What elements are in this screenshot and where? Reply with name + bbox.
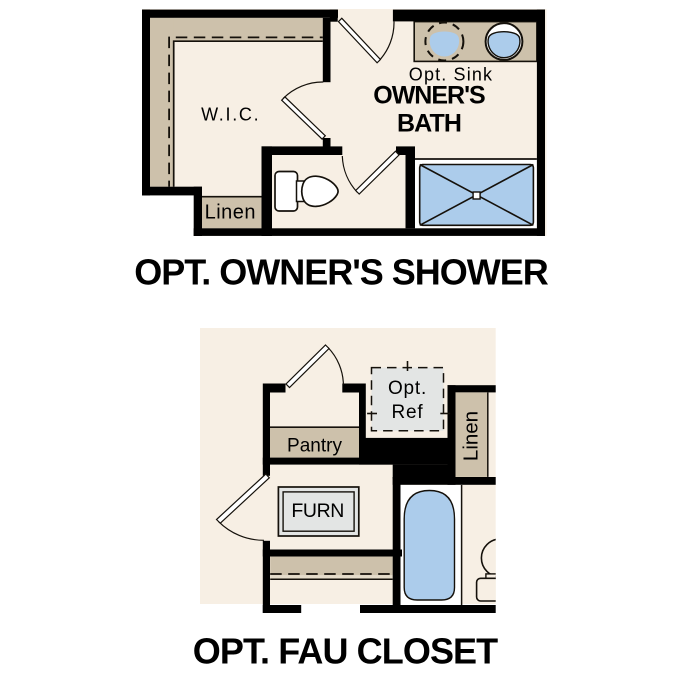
svg-text:OWNER'S: OWNER'S: [373, 82, 485, 110]
svg-text:Pantry: Pantry: [287, 436, 342, 457]
svg-text:Linen: Linen: [460, 411, 483, 461]
svg-text:BATH: BATH: [397, 110, 461, 138]
svg-text:OPT. FAU CLOSET: OPT. FAU CLOSET: [193, 631, 498, 672]
svg-text:W.I.C.: W.I.C.: [201, 105, 260, 125]
svg-text:Ref: Ref: [392, 402, 424, 423]
svg-text:Linen: Linen: [205, 202, 256, 224]
svg-text:OPT. OWNER'S SHOWER: OPT. OWNER'S SHOWER: [134, 252, 549, 293]
svg-text:FURN: FURN: [291, 500, 344, 522]
svg-text:Opt.: Opt.: [388, 378, 427, 399]
